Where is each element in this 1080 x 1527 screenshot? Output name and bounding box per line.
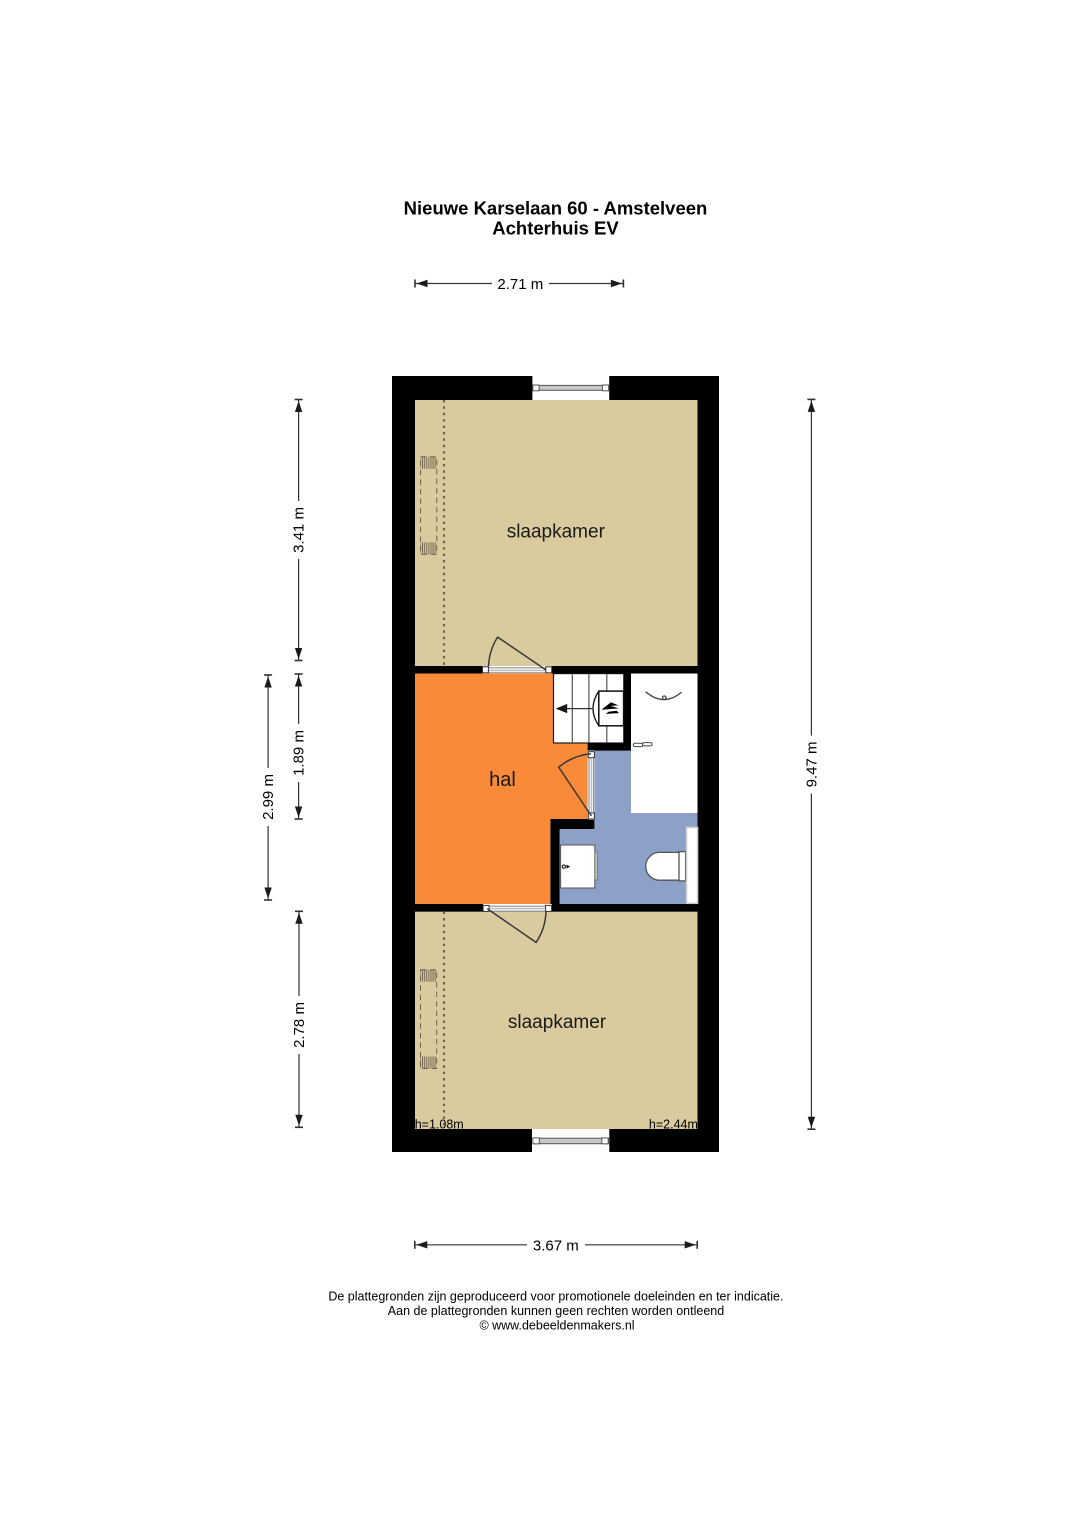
svg-text:hal: hal xyxy=(489,769,516,791)
svg-text:2.99 m: 2.99 m xyxy=(260,774,277,820)
svg-text:Achterhuis EV: Achterhuis EV xyxy=(492,217,619,238)
svg-text:h=2.44m: h=2.44m xyxy=(649,1117,698,1131)
svg-text:h=1.08m: h=1.08m xyxy=(415,1117,464,1131)
svg-text:slaapkamer: slaapkamer xyxy=(507,522,606,543)
svg-text:slaapkamer: slaapkamer xyxy=(508,1012,607,1033)
svg-text:2.78 m: 2.78 m xyxy=(291,1002,308,1048)
svg-text:2.71 m: 2.71 m xyxy=(497,276,543,293)
svg-text:De plattegronden zijn geproduc: De plattegronden zijn geproduceerd voor … xyxy=(328,1290,783,1304)
svg-text:Nieuwe Karselaan 60 - Amstelve: Nieuwe Karselaan 60 - Amstelveen xyxy=(404,197,708,218)
svg-text:9.47 m: 9.47 m xyxy=(803,742,820,788)
svg-text:1.89 m: 1.89 m xyxy=(291,730,308,776)
svg-text:© www.debeeldenmakers.nl: © www.debeeldenmakers.nl xyxy=(479,1319,634,1333)
svg-text:3.67 m: 3.67 m xyxy=(533,1237,579,1254)
svg-text:Aan de plattegronden kunnen ge: Aan de plattegronden kunnen geen rechten… xyxy=(388,1304,724,1318)
svg-text:3.41 m: 3.41 m xyxy=(291,507,308,553)
